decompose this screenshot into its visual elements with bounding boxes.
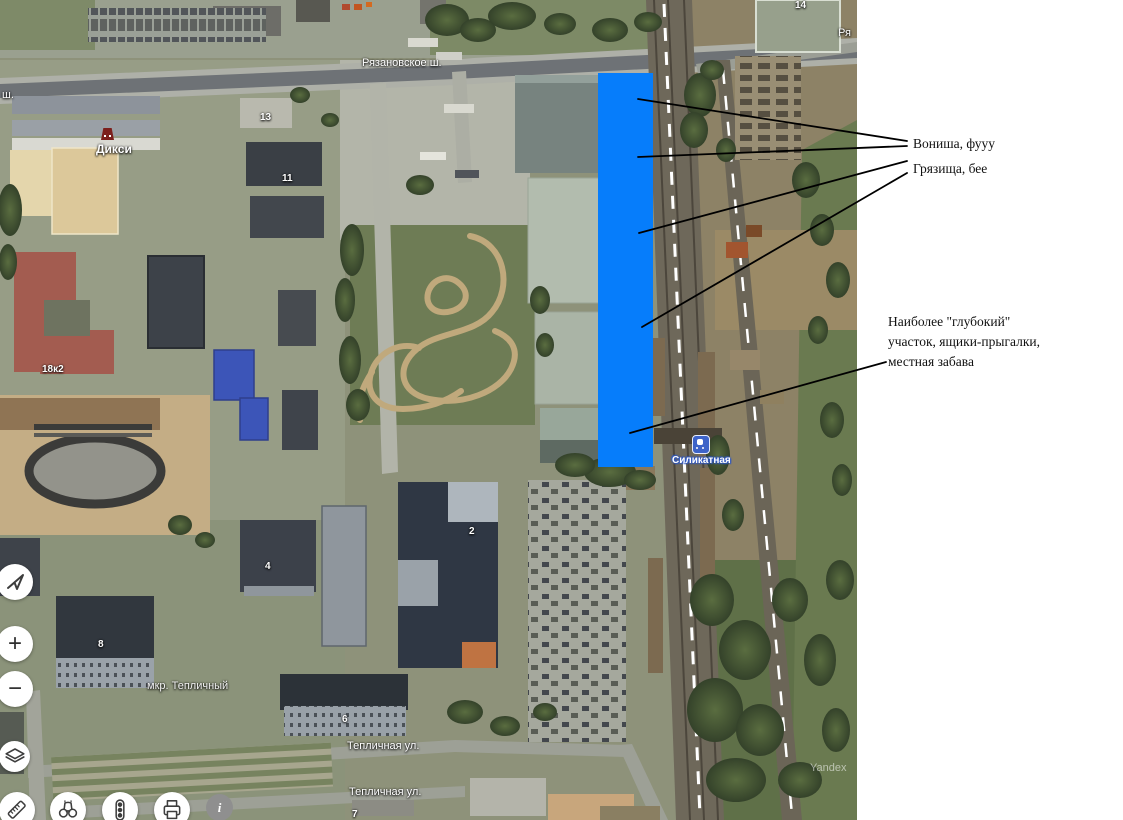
building-number: 7: [352, 809, 358, 820]
layers-icon: [3, 745, 27, 769]
building-number: 18к2: [42, 364, 64, 375]
building-number: 6: [342, 714, 348, 725]
binoculars-icon: [55, 797, 81, 820]
train-icon: [692, 435, 710, 454]
district-label: мкр. Тепличный: [147, 680, 228, 692]
building-number: 14: [795, 0, 806, 11]
annotation-note-deep-line3: местная забава: [888, 352, 1040, 372]
station-marker[interactable]: Силикатная: [672, 435, 731, 466]
map-watermark: Yandex: [810, 762, 847, 774]
printer-icon: [159, 797, 185, 820]
info-icon: i: [218, 800, 222, 816]
panoramas-button[interactable]: [50, 792, 86, 820]
road-label-ryazanovskoe: Рязановское ш.: [362, 57, 442, 69]
road-label-rya-clipped: Ря: [838, 27, 851, 39]
annotation-panel: Вониша, фууу Грязища, бее Наиболее "глуб…: [857, 0, 1123, 820]
road-label-sh: ш.: [2, 89, 14, 101]
annotation-note-dirt: Грязища, бее: [913, 161, 987, 177]
building-number: 13: [260, 112, 271, 123]
annotation-note-deep: Наиболее "глубокий" участок, ящики-прыга…: [888, 312, 1040, 372]
highlight-rectangle: [598, 73, 653, 467]
screenshot-root: Рязановское ш. ш. Ря Тепличная ул. Тепли…: [0, 0, 1123, 820]
street-label-teplichnaya-1: Тепличная ул.: [347, 740, 419, 752]
street-label-teplichnaya-2: Тепличная ул.: [349, 786, 421, 798]
terrain-graphics: [0, 0, 857, 820]
satellite-map[interactable]: Рязановское ш. ш. Ря Тепличная ул. Тепли…: [0, 0, 857, 820]
annotation-note-smell: Вониша, фууу: [913, 136, 995, 152]
ruler-icon: [4, 797, 30, 820]
building-number: 4: [265, 561, 271, 572]
building-number: 11: [282, 173, 293, 184]
poi-store-diksi[interactable]: Дикси: [96, 142, 132, 156]
minus-icon: −: [8, 677, 22, 701]
traffic-light-icon: [107, 797, 133, 820]
layers-button[interactable]: [0, 741, 30, 772]
annotation-note-deep-line1: Наиболее "глубокий": [888, 312, 1040, 332]
traffic-button[interactable]: [102, 792, 138, 820]
station-label: Силикатная: [672, 455, 731, 466]
plus-icon: +: [8, 632, 22, 656]
print-button[interactable]: [154, 792, 190, 820]
building-number: 2: [469, 526, 475, 537]
annotation-note-deep-line2: участок, ящики-прыгалки,: [888, 332, 1040, 352]
ruler-tool-button[interactable]: [0, 792, 35, 820]
building-number: 8: [98, 639, 104, 650]
info-button[interactable]: i: [206, 794, 233, 820]
location-arrow-icon: [4, 571, 26, 593]
